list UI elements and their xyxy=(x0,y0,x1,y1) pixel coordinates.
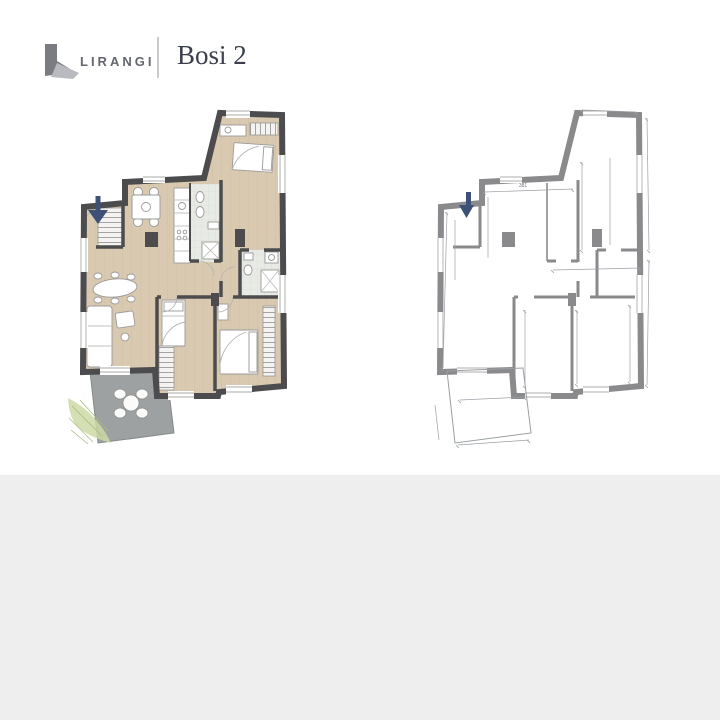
header-divider xyxy=(157,37,159,78)
technical-floor-plan: 381 xyxy=(425,100,675,450)
wardrobe-hatch xyxy=(250,123,278,135)
lirangi-mark-icon xyxy=(42,42,82,80)
info-band: B9 4 locali 122,85 mq Primo piano N xyxy=(0,475,720,720)
walls xyxy=(440,113,641,396)
project-name: Bosi 2 xyxy=(177,40,247,71)
brand-name: LIRANGI xyxy=(80,54,154,69)
living-table xyxy=(92,272,137,304)
wardrobe-hatch xyxy=(159,346,174,390)
dresser xyxy=(220,125,246,136)
furnished-floor-plan xyxy=(68,100,318,450)
brochure-page: LIRANGI Bosi 2 xyxy=(0,0,720,720)
dimension-label: 381 xyxy=(519,183,528,189)
bed-master xyxy=(232,143,274,173)
kitchen-counter xyxy=(174,188,190,263)
wardrobe-hatch xyxy=(263,306,275,376)
